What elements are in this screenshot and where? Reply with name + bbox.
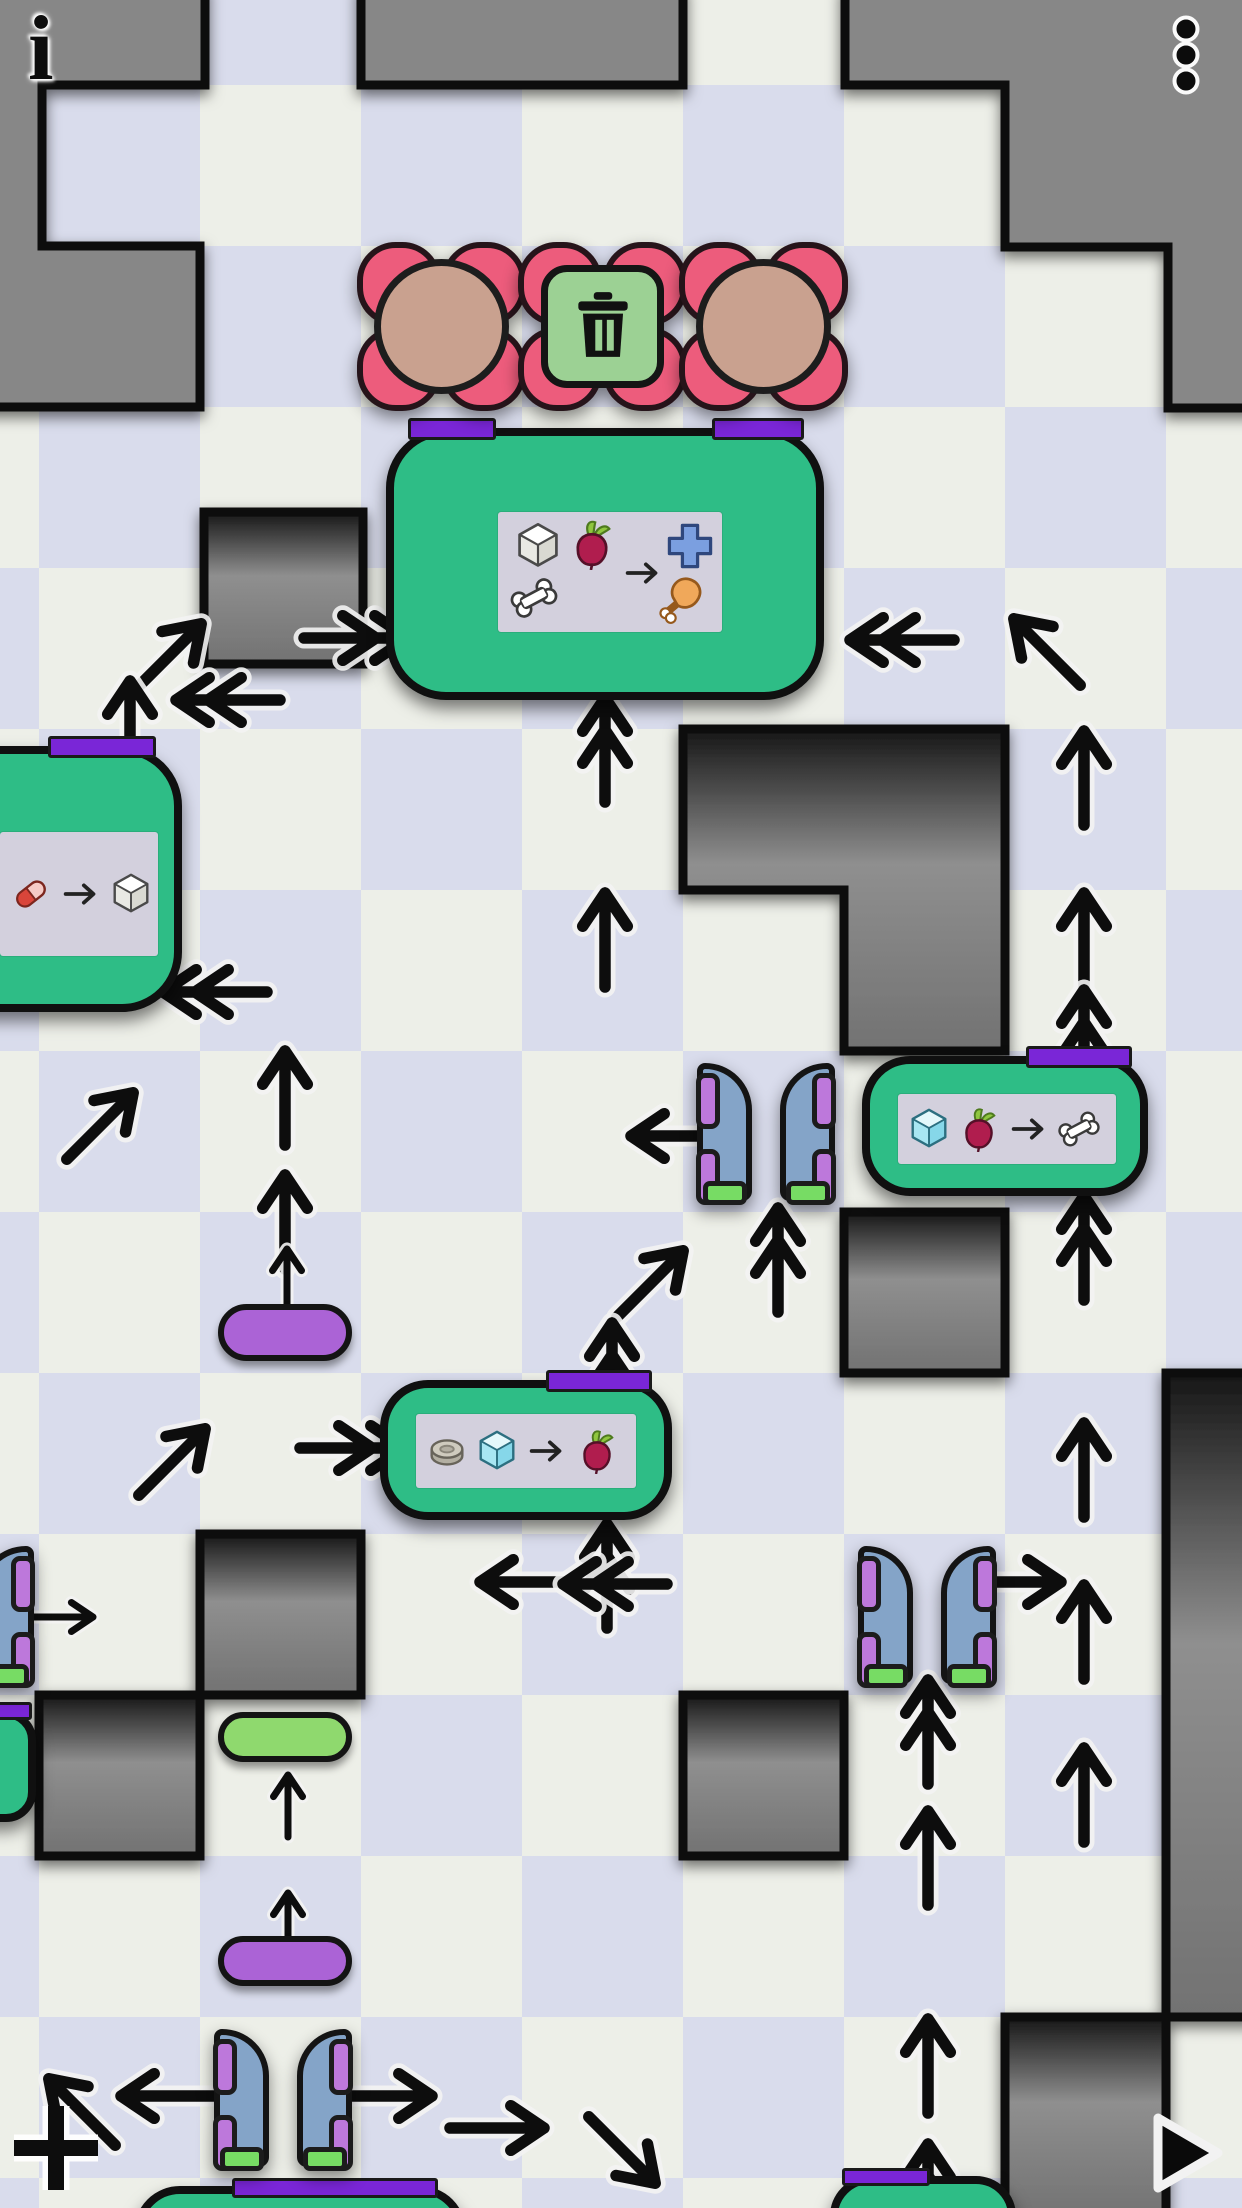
recipe-icon-white-cube bbox=[512, 520, 564, 572]
machine-recipe-panel bbox=[0, 832, 158, 956]
gate-door bbox=[0, 1546, 34, 1684]
trash-can bbox=[541, 265, 664, 388]
gate-green-bar bbox=[220, 2147, 264, 2171]
conveyor-arrow bbox=[756, 1208, 801, 1312]
gate-pair[interactable] bbox=[0, 1534, 43, 1695]
gate-tab bbox=[812, 1073, 836, 1129]
item-pill bbox=[218, 1936, 352, 1986]
add-button[interactable] bbox=[6, 2098, 106, 2198]
gate-green-bar bbox=[303, 2147, 347, 2171]
recipe-icon-drumstick bbox=[658, 572, 710, 624]
conveyor-arrow bbox=[1062, 1748, 1107, 1842]
gate-green-bar bbox=[864, 1664, 908, 1688]
io-port bbox=[1026, 1046, 1132, 1068]
machine-recipe-panel bbox=[898, 1094, 1116, 1164]
conveyor-arrow bbox=[583, 893, 628, 987]
gate-tab bbox=[973, 1556, 997, 1612]
io-port bbox=[408, 418, 496, 440]
recipe-icon-ice-cube bbox=[906, 1106, 952, 1152]
play-button[interactable] bbox=[1146, 2076, 1242, 2208]
conveyor-arrow bbox=[139, 1429, 205, 1495]
gate-pair[interactable] bbox=[200, 2017, 361, 2178]
trash-tile[interactable] bbox=[522, 246, 683, 407]
gate-door bbox=[941, 1546, 996, 1684]
item-pill bbox=[218, 1712, 352, 1762]
bear-face bbox=[374, 259, 509, 394]
recipe-icon-bone bbox=[508, 572, 560, 624]
gate-green-bar bbox=[947, 1664, 991, 1688]
gate-door bbox=[214, 2029, 269, 2167]
recipe-icon-beet bbox=[956, 1106, 1002, 1152]
conveyor-arrow bbox=[1062, 1196, 1107, 1300]
bear-face bbox=[696, 259, 831, 394]
conveyor-arrow bbox=[563, 1562, 667, 1607]
io-port bbox=[546, 1370, 652, 1392]
recipe-icon-blue-plus bbox=[664, 520, 716, 572]
recipe-icon-disc bbox=[424, 1428, 470, 1474]
conveyor-arrow bbox=[589, 2117, 655, 2183]
gate-green-bar bbox=[786, 1181, 830, 1205]
gate-door bbox=[697, 1063, 752, 1201]
gate-tab bbox=[857, 1556, 881, 1612]
conveyor-arrow bbox=[274, 1775, 303, 1837]
conveyor-arrow bbox=[906, 1680, 951, 1784]
io-port bbox=[0, 1702, 32, 1720]
conveyor-arrow bbox=[906, 2019, 951, 2113]
item-pill bbox=[218, 1304, 352, 1361]
recipe-icon-beet bbox=[574, 1428, 620, 1474]
conveyor-arrow bbox=[176, 678, 280, 723]
recipe-arrow-icon bbox=[1006, 1106, 1052, 1152]
gate-pair[interactable] bbox=[683, 1051, 844, 1212]
conveyor-arrow bbox=[583, 698, 628, 802]
game-board: i bbox=[0, 0, 1242, 2208]
conveyor-arrow bbox=[1062, 893, 1107, 987]
machine-machine-left-edge[interactable] bbox=[0, 1710, 36, 1822]
conveyor-arrow bbox=[163, 970, 267, 1015]
trash-icon bbox=[566, 286, 640, 366]
delivery-bear-tile[interactable] bbox=[683, 246, 844, 407]
io-port bbox=[712, 418, 804, 440]
gate-green-bar bbox=[0, 1664, 29, 1688]
recipe-icon-capsule bbox=[8, 871, 54, 917]
conveyor-arrow bbox=[906, 1811, 951, 1905]
gate-door bbox=[780, 1063, 835, 1201]
recipe-arrow-icon bbox=[524, 1428, 570, 1474]
gate-pair[interactable] bbox=[844, 1534, 1005, 1695]
recipe-icon-white-cube bbox=[108, 871, 154, 917]
gate-door bbox=[858, 1546, 913, 1684]
recipe-arrow-icon bbox=[58, 871, 104, 917]
machine-recipe-panel bbox=[416, 1414, 636, 1488]
io-port bbox=[232, 2178, 438, 2198]
conveyor-arrow bbox=[1062, 1585, 1107, 1679]
conveyor-arrow bbox=[273, 1249, 302, 1311]
recipe-icon-beet bbox=[566, 518, 618, 570]
gate-door bbox=[297, 2029, 352, 2167]
gate-green-bar bbox=[703, 1181, 747, 1205]
machine-recipe-panel bbox=[498, 512, 722, 632]
info-icon[interactable]: i bbox=[28, 2, 54, 94]
io-port bbox=[48, 736, 156, 758]
gate-tab bbox=[213, 2039, 237, 2095]
conveyor-arrow bbox=[850, 618, 954, 663]
conveyor-arrow bbox=[263, 1051, 308, 1145]
conveyor-arrow bbox=[1062, 731, 1107, 825]
gate-tab bbox=[11, 1556, 35, 1612]
conveyor-arrow bbox=[450, 2106, 544, 2151]
recipe-icon-bone bbox=[1056, 1106, 1102, 1152]
conveyor-arrow bbox=[617, 1251, 683, 1317]
delivery-bear-tile[interactable] bbox=[361, 246, 522, 407]
menu-icon[interactable] bbox=[1156, 14, 1216, 104]
gate-tab bbox=[696, 1073, 720, 1129]
conveyor-arrow bbox=[67, 1093, 133, 1159]
conveyor-arrow bbox=[1062, 1423, 1107, 1517]
recipe-icon-ice-cube bbox=[474, 1428, 520, 1474]
io-port bbox=[842, 2168, 930, 2186]
gate-tab bbox=[329, 2039, 353, 2095]
conveyor-arrow bbox=[1014, 619, 1080, 685]
